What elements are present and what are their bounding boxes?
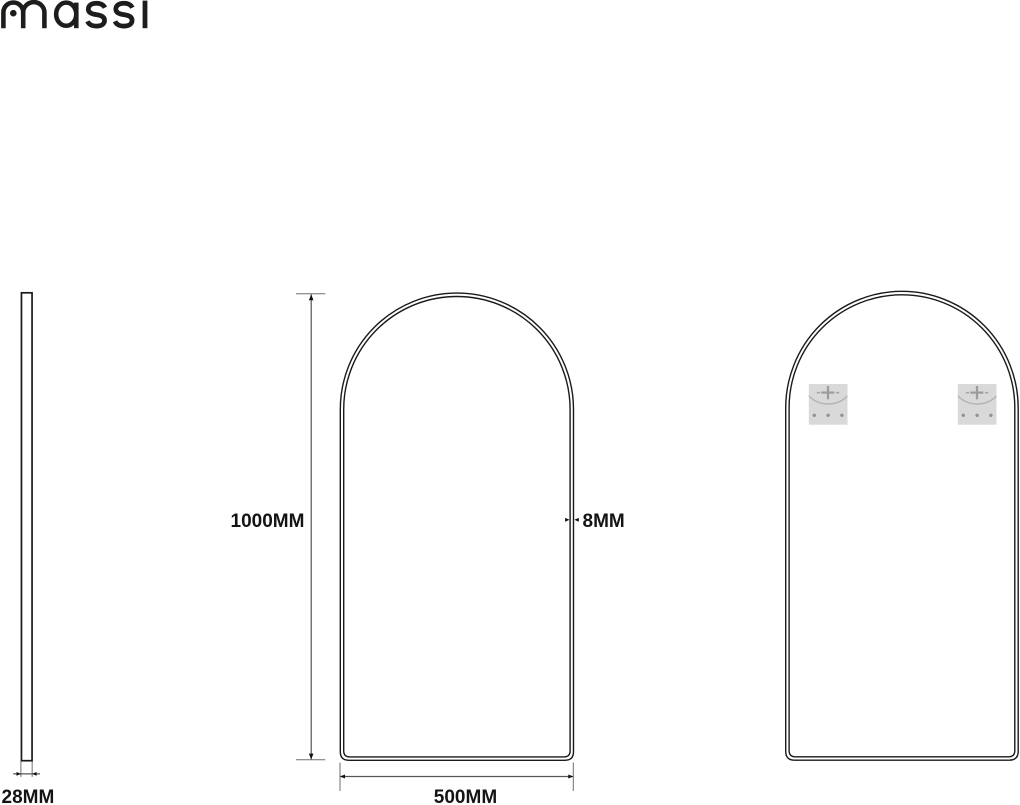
svg-text:1000MM: 1000MM	[231, 511, 305, 532]
svg-text:8MM: 8MM	[583, 511, 625, 532]
svg-text:500MM: 500MM	[434, 787, 497, 805]
svg-text:28MM: 28MM	[2, 787, 55, 805]
